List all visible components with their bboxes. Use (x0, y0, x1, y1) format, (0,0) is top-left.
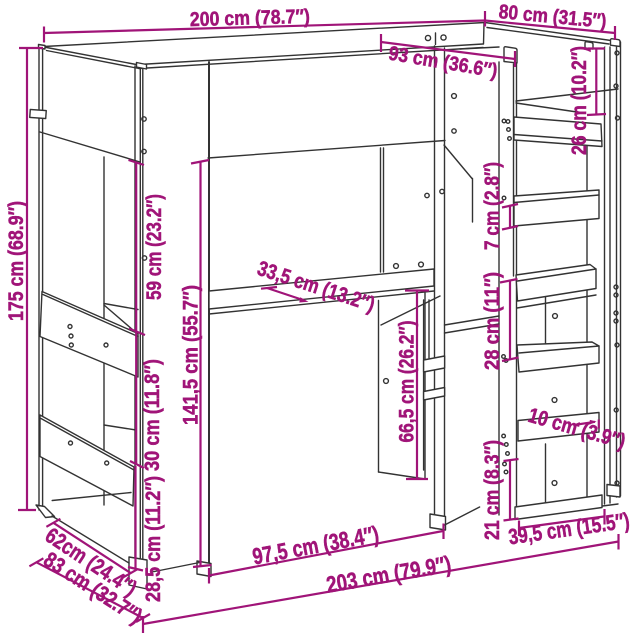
svg-text:30 cm (11.8″): 30 cm (11.8″) (141, 359, 164, 471)
svg-text:21 cm (8.3″): 21 cm (8.3″) (481, 440, 504, 540)
svg-text:175 cm (68.9″): 175 cm (68.9″) (5, 201, 28, 321)
svg-text:28 cm (11″): 28 cm (11″) (481, 272, 504, 370)
svg-text:59 cm (23.2″): 59 cm (23.2″) (143, 194, 166, 300)
svg-text:28,5 cm (11.2″): 28,5 cm (11.2″) (142, 476, 165, 602)
svg-text:200 cm (78.7″): 200 cm (78.7″) (190, 6, 311, 31)
svg-text:26 cm (10.2″): 26 cm (10.2″) (568, 46, 591, 155)
svg-text:141,5 cm (55.7″): 141,5 cm (55.7″) (180, 285, 203, 425)
svg-text:7 cm (2.8″): 7 cm (2.8″) (481, 162, 504, 250)
svg-text:66,5 cm (26.2″): 66,5 cm (26.2″) (396, 321, 419, 443)
